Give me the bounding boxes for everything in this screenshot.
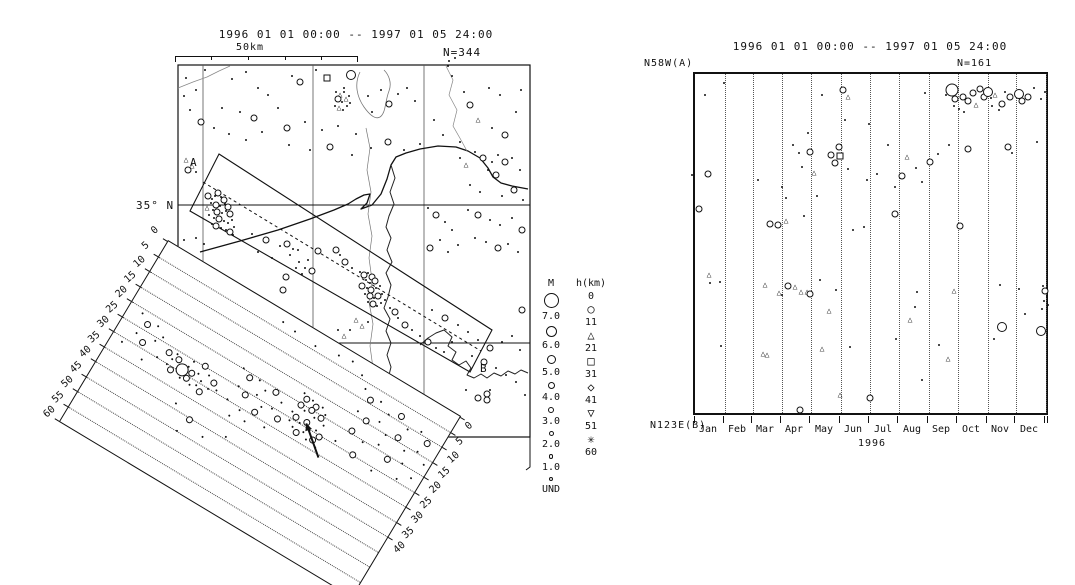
data-point	[211, 223, 213, 225]
data-point	[366, 395, 376, 405]
data-point	[343, 87, 345, 89]
data-point	[213, 223, 220, 230]
data-point	[227, 211, 234, 218]
data-point	[397, 93, 399, 95]
data-point	[219, 205, 221, 207]
data-point	[444, 221, 446, 223]
magnitude-legend-symbol	[549, 477, 553, 481]
data-point	[489, 219, 491, 221]
data-point	[433, 212, 440, 219]
data-point	[201, 436, 204, 439]
data-point	[475, 395, 482, 402]
data-point	[367, 95, 369, 97]
data-point	[289, 254, 291, 256]
data-point	[378, 421, 381, 424]
data-point	[493, 172, 500, 179]
data-point	[334, 440, 337, 443]
data-point	[351, 267, 353, 269]
magnitude-legend-symbol	[544, 293, 559, 308]
data-point	[143, 320, 153, 330]
data-point	[459, 157, 461, 159]
depth-legend-column: h(km) 0○11△21□31◇41▽51✳60	[570, 278, 612, 459]
data-point	[195, 237, 197, 239]
data-point	[384, 299, 386, 301]
data-point	[203, 243, 205, 245]
data-point	[209, 378, 219, 388]
data-point	[502, 132, 509, 139]
data-point	[384, 434, 387, 437]
data-point	[157, 325, 160, 328]
data-point	[227, 222, 229, 224]
section-endpoint-a-label: A	[190, 156, 198, 169]
data-point	[522, 199, 524, 201]
data-point	[451, 229, 453, 231]
data-point	[194, 387, 204, 397]
data-point	[288, 419, 291, 422]
data-point	[294, 330, 297, 333]
data-point	[501, 341, 503, 343]
data-point	[477, 339, 479, 341]
data-point	[195, 89, 197, 91]
data-point	[313, 416, 316, 419]
data-point	[392, 309, 399, 316]
magnitude-legend-label: 5.0	[542, 367, 560, 379]
data-point	[385, 139, 392, 146]
data-point	[343, 91, 345, 93]
data-point: △	[205, 204, 210, 212]
data-point	[211, 198, 213, 200]
data-point	[361, 441, 364, 444]
data-point	[291, 425, 294, 428]
data-point	[431, 309, 433, 311]
data-point	[406, 87, 408, 89]
magnitude-legend-symbol	[547, 355, 556, 364]
data-point	[451, 341, 453, 343]
data-point	[273, 414, 283, 424]
data-point	[370, 469, 373, 472]
data-point	[361, 374, 364, 377]
data-point	[280, 287, 287, 294]
data-point: △	[337, 104, 342, 112]
magnitude-legend-column: M 7.06.05.04.03.02.01.0UND	[536, 278, 566, 496]
data-point	[301, 273, 303, 275]
data-point	[447, 65, 449, 67]
data-point	[221, 212, 223, 214]
data-point	[359, 283, 366, 290]
data-point	[457, 244, 459, 246]
square-icon: □	[587, 355, 594, 368]
data-point	[488, 87, 490, 89]
data-point	[291, 428, 301, 438]
data-point	[487, 169, 489, 171]
depth-legend-header: h(km)	[576, 278, 606, 290]
data-point	[495, 367, 497, 369]
data-point	[189, 109, 191, 111]
data-point	[393, 433, 403, 443]
data-point	[216, 216, 223, 223]
data-point	[339, 254, 341, 256]
data-point	[348, 450, 358, 460]
data-point	[454, 57, 456, 59]
data-point	[507, 243, 509, 245]
data-point	[519, 169, 521, 171]
data-point	[433, 119, 435, 121]
magnitude-legend-symbol	[546, 326, 557, 337]
data-point	[232, 234, 234, 236]
data-point	[305, 438, 308, 441]
data-point	[308, 429, 311, 432]
data-point	[427, 207, 429, 209]
data-point	[175, 402, 178, 405]
data-point	[198, 119, 205, 126]
data-point	[221, 107, 223, 109]
data-point	[183, 239, 185, 241]
data-point	[467, 102, 474, 109]
data-point	[321, 406, 324, 409]
data-point	[425, 339, 432, 346]
magnitude-legend-label: 6.0	[542, 340, 560, 352]
data-point	[228, 133, 230, 135]
data-point	[484, 397, 491, 404]
data-point	[280, 401, 283, 404]
data-point	[231, 219, 233, 221]
data-point	[364, 388, 367, 391]
asterisk-icon: ✳	[587, 433, 594, 446]
data-point	[422, 463, 425, 466]
data-point	[442, 315, 449, 322]
data-point	[386, 101, 393, 108]
data-point	[291, 75, 293, 77]
data-point	[380, 400, 383, 403]
data-point	[188, 383, 191, 386]
data-point	[447, 251, 449, 253]
depth-legend-label: 60	[585, 446, 597, 459]
data-point	[314, 345, 317, 348]
data-point	[479, 191, 481, 193]
data-point	[257, 87, 259, 89]
data-point	[497, 154, 499, 156]
data-point	[201, 361, 211, 371]
data-point	[467, 209, 469, 211]
data-point	[303, 392, 306, 395]
magnitude-legend-label: 4.0	[542, 392, 560, 404]
data-point	[195, 171, 197, 173]
data-point	[291, 410, 294, 413]
data-point	[257, 251, 259, 253]
data-point	[297, 79, 304, 86]
data-point	[491, 161, 493, 163]
data-point	[348, 95, 350, 97]
data-point: △	[342, 332, 347, 340]
data-point	[351, 154, 353, 156]
data-point	[315, 248, 322, 255]
data-point	[346, 105, 348, 107]
data-point	[239, 111, 241, 113]
data-point	[474, 237, 476, 239]
magnitude-legend-label: UND	[542, 484, 560, 496]
data-point	[475, 212, 482, 219]
data-point	[250, 407, 260, 417]
magnitude-legend-symbol	[548, 382, 555, 389]
data-point: △	[360, 322, 365, 330]
data-point	[195, 384, 198, 387]
data-point	[292, 248, 294, 250]
data-point	[224, 436, 227, 439]
data-point	[251, 115, 258, 122]
data-point	[519, 307, 526, 314]
data-point	[284, 125, 291, 132]
data-point	[487, 345, 494, 352]
data-point	[427, 245, 434, 252]
data-point	[267, 94, 269, 96]
data-point	[502, 159, 509, 166]
magnitude-legend-header: M	[548, 278, 554, 290]
data-point	[178, 376, 181, 379]
data-point	[448, 60, 450, 62]
data-point	[369, 282, 371, 284]
data-point	[271, 257, 273, 259]
data-point	[435, 347, 437, 349]
data-point	[314, 446, 317, 449]
data-point	[315, 69, 317, 71]
data-point	[349, 102, 351, 104]
data-point	[185, 415, 195, 425]
data-point	[524, 394, 526, 396]
data-point	[414, 100, 416, 102]
magnitude-legend-label: 7.0	[542, 311, 560, 323]
data-point	[264, 389, 267, 392]
data-point	[185, 77, 187, 79]
data-point	[420, 431, 423, 434]
data-point	[443, 351, 445, 353]
data-point	[288, 144, 290, 146]
magnitude-legend-symbol	[549, 454, 554, 459]
data-point	[511, 335, 513, 337]
data-point	[474, 151, 476, 153]
seismicity-figure: 1996 01 01 00:00 -- 1997 01 05 24:00 50k…	[0, 0, 1075, 585]
data-point	[271, 407, 274, 410]
data-point	[355, 133, 357, 135]
data-point	[245, 139, 247, 141]
data-point	[338, 354, 341, 357]
data-point	[258, 379, 261, 382]
data-point	[238, 409, 241, 412]
data-point	[333, 247, 340, 254]
data-point	[307, 259, 309, 261]
data-point	[171, 358, 174, 361]
inverted-triangle-icon: ▽	[587, 407, 594, 420]
triangle-icon: △	[587, 329, 594, 342]
data-point	[208, 374, 211, 377]
data-point	[517, 251, 519, 253]
data-point	[309, 268, 316, 275]
data-point	[419, 143, 421, 145]
data-point	[465, 389, 467, 391]
data-point: △	[476, 116, 481, 124]
data-point	[511, 217, 513, 219]
data-point	[261, 131, 263, 133]
data-point	[231, 78, 233, 80]
data-point	[410, 477, 413, 480]
data-point	[183, 95, 185, 97]
data-point	[223, 220, 225, 222]
data-point	[315, 429, 318, 432]
data-point	[297, 249, 299, 251]
data-point	[375, 287, 377, 289]
data-point	[403, 149, 405, 151]
data-point	[214, 209, 221, 216]
data-point	[411, 329, 413, 331]
data-point	[351, 360, 354, 363]
data-point	[515, 381, 517, 383]
data-point	[471, 355, 473, 357]
data-point	[279, 245, 281, 247]
data-point	[519, 349, 521, 351]
data-point	[251, 233, 253, 235]
data-point	[154, 339, 157, 342]
data-point: △	[184, 156, 189, 164]
data-point	[342, 109, 344, 111]
data-point	[256, 394, 259, 397]
data-point	[357, 410, 360, 413]
data-point	[402, 322, 409, 329]
data-point	[469, 184, 471, 186]
data-point	[499, 94, 501, 96]
circle-icon: ○	[587, 303, 594, 316]
data-point	[162, 336, 165, 339]
data-point	[515, 111, 517, 113]
data-point	[520, 89, 522, 91]
data-point	[327, 144, 334, 151]
data-point	[371, 111, 373, 113]
data-point	[208, 214, 210, 216]
data-point	[381, 293, 383, 295]
data-point	[485, 241, 487, 243]
data-point	[370, 147, 372, 149]
data-point	[304, 267, 306, 269]
data-point	[121, 340, 124, 343]
data-point	[200, 380, 203, 383]
data-point	[204, 69, 206, 71]
magnitude-legend-label: 2.0	[542, 439, 560, 451]
data-point	[197, 372, 200, 375]
data-point	[457, 324, 459, 326]
data-point	[233, 226, 235, 228]
data-point	[395, 477, 398, 480]
magnitude-legend-symbol	[548, 407, 554, 413]
magnitude-legend-label: 1.0	[542, 462, 560, 474]
data-point	[451, 75, 453, 77]
data-point	[140, 358, 143, 361]
data-point	[377, 443, 380, 446]
map-scale-bar	[175, 56, 358, 57]
data-point	[282, 321, 285, 324]
magnitude-legend-symbol	[549, 431, 554, 436]
data-point	[519, 227, 526, 234]
data-point	[321, 129, 323, 131]
data-point	[349, 329, 351, 331]
data-point	[263, 237, 270, 244]
data-point	[309, 149, 311, 151]
data-point	[511, 187, 518, 194]
data-point	[303, 409, 306, 412]
data-point	[298, 261, 300, 263]
data-point	[302, 431, 305, 434]
data-point	[228, 414, 231, 417]
data-point	[213, 127, 215, 129]
data-point	[342, 259, 349, 266]
data-point	[164, 348, 174, 358]
data-point	[505, 374, 507, 376]
data-point	[419, 335, 421, 337]
data-point	[397, 317, 399, 319]
data-point	[263, 426, 266, 429]
data-point	[304, 121, 306, 123]
data-point	[501, 195, 503, 197]
data-point	[372, 278, 379, 285]
data-point	[346, 70, 356, 80]
data-point: △	[464, 161, 469, 169]
data-point: △	[354, 316, 359, 324]
data-point	[245, 71, 247, 73]
data-point	[439, 239, 441, 241]
data-point	[499, 224, 501, 226]
data-point	[463, 91, 465, 93]
data-point	[193, 360, 196, 363]
data-point	[141, 312, 144, 315]
data-point	[283, 274, 290, 281]
data-point	[442, 134, 444, 136]
data-point	[403, 449, 406, 452]
data-point	[365, 279, 367, 281]
data-point	[295, 267, 297, 269]
data-point	[459, 141, 461, 143]
data-point	[322, 424, 325, 427]
data-point	[380, 89, 382, 91]
data-point	[380, 302, 382, 304]
data-point	[260, 406, 263, 409]
data-point	[215, 389, 218, 392]
data-point	[467, 331, 469, 333]
data-point	[337, 329, 339, 331]
data-point	[243, 420, 246, 423]
data-point	[480, 155, 487, 162]
data-point	[284, 241, 291, 248]
data-point	[511, 157, 513, 159]
data-point	[389, 307, 391, 309]
magnitude-legend-label: 3.0	[542, 416, 560, 428]
data-point	[135, 332, 138, 335]
data-point	[495, 245, 502, 252]
data-point	[376, 305, 378, 307]
data-point	[406, 428, 409, 431]
section-endpoint-b-label: B	[480, 362, 488, 375]
data-point	[337, 125, 339, 127]
data-point	[220, 227, 222, 229]
data-point	[312, 399, 315, 402]
data-point	[367, 321, 369, 323]
data-point	[491, 127, 493, 129]
data-point	[324, 75, 331, 82]
data-point	[379, 285, 381, 287]
diamond-icon: ◇	[587, 381, 594, 394]
data-point	[277, 107, 279, 109]
